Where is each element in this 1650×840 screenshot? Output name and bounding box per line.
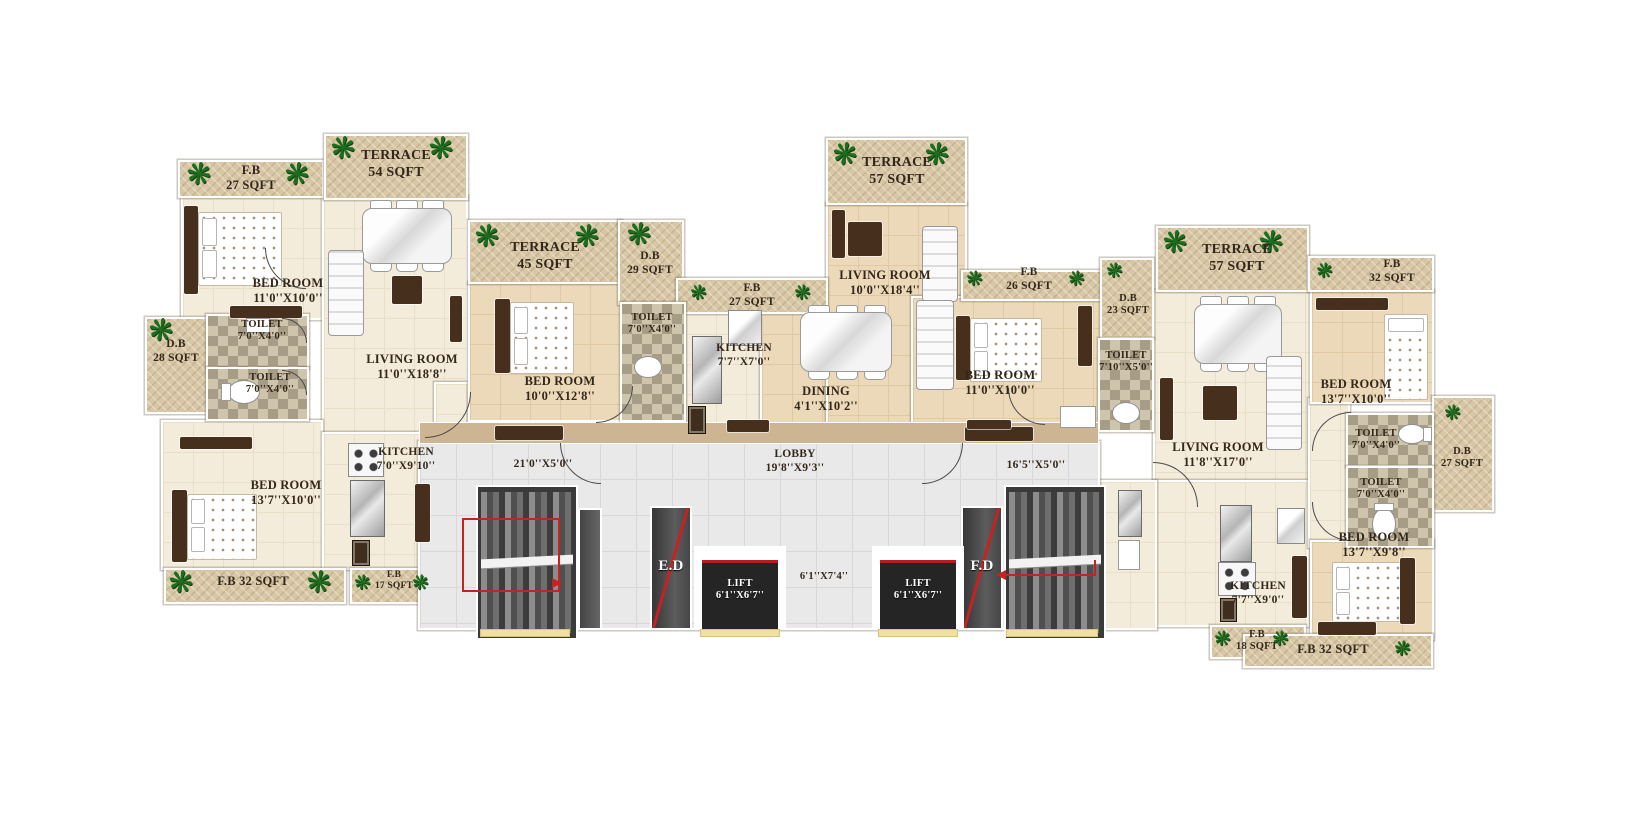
label-db-a: D.B28 SQFT [153,338,199,365]
pillow [191,499,205,524]
label-db-d: D.B27 SQFT [1441,446,1483,471]
tv-unit [848,222,882,256]
label-lift-right: LIFT6'1''X6'7'' [894,578,942,603]
label-toilet-c: TOILET7'10''X5'0'' [1099,350,1153,375]
entrance-cabinet [965,427,1033,441]
entrance-cabinet [495,426,563,440]
label-toilet-a2: TOILET7'0''X4'0'' [246,372,294,397]
bed-headboard [172,490,187,562]
label-toilet-b: TOILET7'0''X4'0'' [628,312,676,337]
label-kitchen-a: KITCHEN7'0''X9'10'' [377,446,436,473]
label-lobby: LOBBY19'8''X9'3'' [766,448,825,475]
red-exit-path-left [462,518,560,592]
red-exit-arrow-left [552,578,562,588]
label-kitchen-d: KITCHEN7'7''X9'0'' [1230,580,1286,607]
kitchen-counter [727,420,769,432]
bed-headboard [184,206,198,294]
service-duct [580,510,600,628]
tv-unit [392,276,422,304]
sofa [916,300,954,390]
label-fb-a-top: F.B27 SQFT [226,163,276,193]
pillow [202,250,217,278]
window-sill [1006,629,1098,637]
window-ledge [967,420,1011,429]
toilet-fixture [634,356,662,378]
window-sill [480,629,570,637]
label-terrace-c: TERRACE57 SQFT [862,155,932,188]
label-bedroom-c: BED ROOM11'0''X10'0'' [965,368,1036,398]
stair-landing [1009,554,1101,568]
kitchen-counter [415,484,430,542]
label-terrace-d: TERRACE57 SQFT [1202,242,1272,275]
label-living-c: LIVING ROOM10'0''X18'4'' [839,268,930,298]
wardrobe [1318,622,1376,635]
label-fb-a-bot2: F.B17 SQFT [375,570,413,592]
label-lift-left: LIFT6'1''X6'7'' [716,578,764,603]
fridge [688,406,706,434]
sofa [328,250,364,336]
label-toilet-a1: TOILET7'0''X4'0'' [238,319,286,344]
label-living-a: LIVING ROOM11'0''X18'8'' [366,352,457,382]
label-lift-lobby: 6'1''X7'4'' [800,571,848,583]
wardrobe [1292,556,1307,618]
label-fb-d-top: F.B32 SQFT [1369,258,1415,285]
pillow [974,323,988,348]
dining-table [362,208,452,264]
tv-unit [1203,386,1237,420]
fridge [352,540,370,566]
wardrobe [1316,298,1388,310]
label-toilet-d2: TOILET7'0''X4'0'' [1357,477,1405,502]
cabinet [1118,540,1140,570]
label-fb-d-bottom: F.B 32 SQFT [1297,642,1369,657]
label-terrace-b: TERRACE45 SQFT [510,240,580,273]
label-fb-a-bot1: F.B 32 SQFT [217,574,289,589]
toilet-tank [1374,503,1394,511]
bed-headboard [1400,558,1415,624]
pillow [1336,592,1350,615]
dresser [230,306,302,318]
kitchen-platform-mirror [350,480,385,537]
pillow [1388,318,1424,332]
label-corridor-left: 21'0''X5'0'' [514,458,573,472]
window-sill [700,629,780,637]
wardrobe [1160,378,1173,440]
label-electrical-duct: E.D [658,558,683,576]
toilet-tank [1423,427,1432,442]
dining-table [800,312,892,372]
cabinet [1060,406,1096,428]
mirror [1118,490,1142,537]
label-fb-d-mid: F.B18 SQFT [1236,629,1278,654]
dining-table [1194,304,1282,364]
label-fb-c: F.B26 SQFT [1006,266,1052,293]
label-bedroom-a1: BED ROOM11'0''X10'0'' [253,276,324,306]
label-dining-c: DINING4'1''X10'2'' [794,384,858,414]
pillow [1336,567,1350,590]
wardrobe [1078,306,1092,366]
red-exit-arrow-right [996,570,1006,580]
label-db-c: D.B23 SQFT [1107,293,1149,318]
red-exit-path-right-end [1094,560,1096,576]
toilet-fixture [1398,424,1426,444]
label-bedroom-b: BED ROOM10'0''X12'8'' [525,374,596,404]
wardrobe [180,437,252,449]
toilet-fixture [1112,402,1140,424]
label-kitchen-b: KITCHEN7'7''X7'0'' [716,342,772,369]
label-living-d: LIVING ROOM11'8''X17'0'' [1172,440,1263,470]
label-corridor-right: 16'5''X5'0'' [1007,459,1066,473]
red-exit-path-right [1002,574,1096,576]
label-toilet-d1: TOILET7'0''X4'0'' [1352,428,1400,453]
toilet-tank [221,383,231,401]
pillow [191,527,205,552]
pillow [514,307,528,334]
pillow [202,218,217,246]
window-sill [878,629,958,637]
bed-headboard [495,299,510,373]
label-fire-duct: F.D [971,558,994,576]
label-terrace-a: TERRACE54 SQFT [361,148,431,181]
kitchen-platform-mirror [1220,505,1252,562]
label-fb-b: F.B27 SQFT [729,282,775,309]
label-bedroom-a2: BED ROOM13'7''X10'0'' [251,478,322,508]
label-bedroom-d1: BED ROOM13'7''X10'0'' [1321,377,1392,407]
label-bedroom-d2: BED ROOM13'7''X9'8'' [1339,530,1410,560]
wardrobe [450,296,462,342]
wash-basin-mirror [1277,508,1305,544]
pillow [514,338,528,365]
floor-plan: ❋ ❋ ❋ ❋ ❋ ❋ ❋ ❋ ❋ ❋ ❋ ❋ ❋ ❋ ❋ ❋ ❋ ❋ ❋ ❋ … [0,0,1650,840]
wardrobe [832,210,845,258]
sofa [1266,356,1302,450]
label-db-b: D.B29 SQFT [627,250,673,277]
wash-basin-mirror [728,310,762,346]
staircase-right [1006,487,1104,638]
